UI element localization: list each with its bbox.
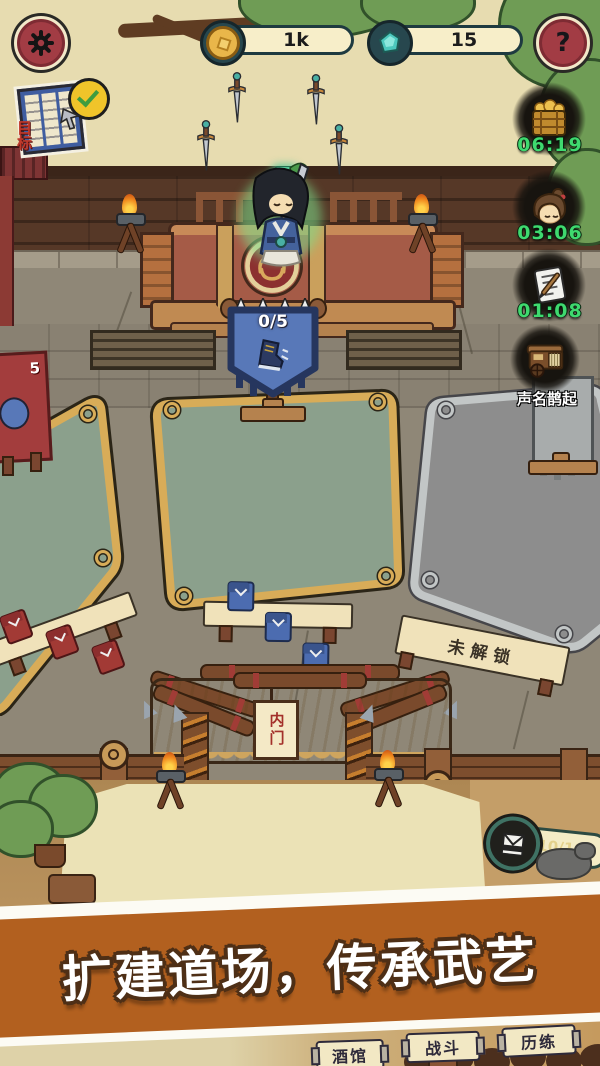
left-progress-banner[interactable]: 5: [0, 351, 53, 464]
bush-trunk: [34, 844, 66, 868]
timer-scroll: 01:08: [500, 300, 600, 322]
coin-icon: [206, 26, 240, 60]
promo-banner: 扩建道场，传承武艺: [0, 880, 600, 1048]
gear-icon: [26, 28, 56, 58]
disciple-head-icon: [527, 187, 571, 227]
shield-icon: [0, 397, 30, 431]
hero-character[interactable]: [228, 158, 332, 270]
locked-banner-stand: [528, 460, 598, 475]
rock: [574, 842, 596, 860]
stone-crack: [513, 691, 529, 750]
treasure-chest-icon: [527, 99, 571, 139]
bush: [0, 762, 100, 872]
bench-leg: [323, 627, 337, 644]
goal-widget[interactable]: 目标: [10, 78, 110, 162]
gate-sign-label: 内门: [269, 712, 284, 748]
uniform-ring: [483, 814, 542, 873]
banner-leg: [30, 452, 42, 472]
help-button[interactable]: ?: [536, 16, 590, 70]
caravan-cart-icon: [522, 339, 568, 379]
map-fold: [41, 92, 60, 145]
gem-icon: [377, 30, 403, 56]
left-pillar: [0, 176, 14, 326]
torch: [370, 750, 406, 820]
goal-label: 目标: [16, 120, 31, 150]
sign-leg: [537, 678, 554, 697]
quest-progress: 0/5: [231, 312, 315, 332]
settings-button[interactable]: [14, 16, 68, 70]
nav-tavern[interactable]: 酒馆: [315, 1039, 384, 1066]
left-banner-count: 5: [29, 359, 40, 378]
timer-disciple: 03:06: [500, 222, 600, 244]
nav-training[interactable]: 历练: [501, 1024, 576, 1058]
timer-chest: 06:19: [500, 134, 600, 156]
caravan-badge[interactable]: [510, 324, 580, 394]
help-label: ?: [555, 28, 570, 58]
sword-icon: [224, 70, 250, 126]
banner-stand: [240, 406, 306, 422]
blue-pack-icon: [227, 581, 255, 611]
game-screen: 0/5 5 未解锁: [0, 0, 600, 1066]
caravan-label: 声名鹊起: [492, 388, 600, 409]
training-mat-middle[interactable]: [138, 388, 408, 618]
fallen-log: [48, 874, 96, 904]
nav-battle[interactable]: 战斗: [405, 1031, 480, 1064]
training-gi-icon: [497, 827, 530, 860]
promo-banner-bar: 扩建道场，传承武艺: [0, 893, 600, 1039]
gem-circle: [367, 20, 413, 66]
bench-middle: [203, 593, 354, 640]
bench-leg: [219, 625, 233, 642]
wall-panel: [346, 330, 462, 370]
coin-circle: [200, 20, 246, 66]
blue-pack-icon: [265, 612, 293, 642]
banner-leg: [2, 456, 14, 476]
promo-banner-text: 扩建道场，传承武艺: [60, 920, 540, 1012]
torch: [404, 194, 440, 270]
wall-panel: [90, 330, 216, 370]
cursor-icon: [60, 108, 82, 130]
log-end-icon: [99, 740, 129, 770]
sword-icon: [193, 118, 219, 174]
torch: [112, 194, 148, 270]
dark-rock: [580, 1044, 600, 1066]
sword-icon: [303, 72, 329, 128]
torch: [152, 752, 188, 822]
gate-log: [233, 672, 367, 689]
gate-sign: 内门: [253, 700, 299, 760]
boot-icon: [253, 336, 289, 372]
